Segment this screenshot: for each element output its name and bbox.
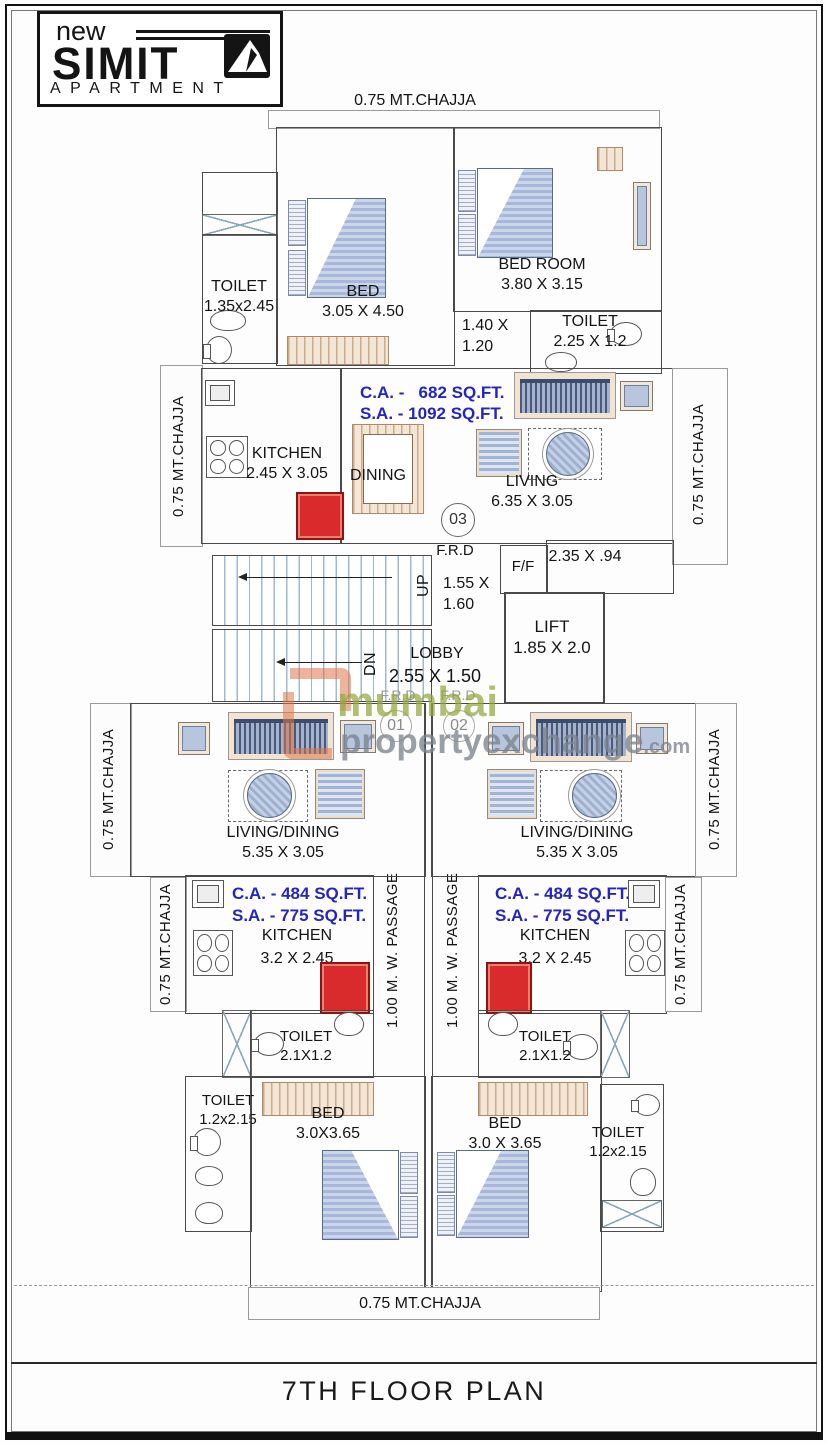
room-dim: 3.05 X 4.50 xyxy=(303,302,423,322)
room-name: BED xyxy=(465,1114,545,1134)
kitchen-platform-icon xyxy=(320,962,370,1014)
pillow-icon xyxy=(400,1196,418,1238)
bed-icon xyxy=(322,1150,418,1240)
mattress-icon xyxy=(477,168,553,258)
stair-flight-up xyxy=(212,555,432,626)
room-dim: 3.0X3.65 xyxy=(288,1124,368,1144)
wc-icon xyxy=(634,1094,660,1116)
logo-rule-1 xyxy=(136,30,270,33)
glass-icon xyxy=(640,727,664,750)
round-table-icon xyxy=(546,432,590,476)
u1-living-label: LIVING/DINING 5.35 X 3.05 xyxy=(203,823,363,863)
bottom-chajja-label: 0.75 MT.CHAJJA xyxy=(320,1294,520,1314)
glass-icon xyxy=(344,724,372,749)
stair-dim-label: 1.55 X 1.60 xyxy=(443,574,489,616)
room-name: BED xyxy=(288,1104,368,1124)
sink-bowl-icon xyxy=(197,885,219,903)
sink-bowl-icon xyxy=(210,385,230,401)
kitchen-sink-icon xyxy=(628,880,660,908)
wardrobe-icon xyxy=(478,1082,588,1116)
room-dim: 2.25 X 1.2 xyxy=(530,332,650,352)
wc-icon xyxy=(193,1128,221,1156)
kitchen-platform-icon xyxy=(486,962,532,1014)
u1-chajja-kitchen-label: 0.75 MT.CHAJJA xyxy=(157,880,177,1008)
washbasin-icon xyxy=(195,1166,223,1186)
u1-bed-label: BED 3.0X3.65 xyxy=(288,1104,368,1144)
u3-bed-label: BED 3.05 X 4.50 xyxy=(303,282,423,322)
stove-icon xyxy=(193,930,233,976)
logo-box: new SIMIT APARTMENT xyxy=(37,11,283,107)
window-curtain-icon xyxy=(530,712,632,762)
bed-icon xyxy=(437,1150,529,1238)
wardrobe-icon xyxy=(287,336,389,365)
u3-chajja-left-label: 0.75 MT.CHAJJA xyxy=(170,390,190,522)
top-chajja-label: 0.75 MT.CHAJJA xyxy=(290,91,540,111)
room-name: LIFT xyxy=(492,616,612,637)
u3-entry-dim-label: 1.40 X 1.20 xyxy=(462,316,508,358)
plan-title: 7TH FLOOR PLAN xyxy=(0,1376,828,1407)
washbasin-icon xyxy=(630,1168,656,1196)
bed-fold-icon xyxy=(457,1151,501,1237)
terrace-dim-label: 2.35 X .94 xyxy=(525,547,645,567)
room-dim: 3.80 X 3.15 xyxy=(482,275,602,295)
frd-right-label: F.R.D xyxy=(428,687,488,705)
u2-chajja-kitchen-label: 0.75 MT.CHAJJA xyxy=(672,880,692,1008)
curtain-panel-icon xyxy=(536,719,626,756)
dim-line: 1.60 xyxy=(443,595,489,616)
u2-bed-label: BED 3.0 X 3.65 xyxy=(465,1114,545,1154)
glass-icon xyxy=(624,385,649,407)
u2-toilet-big-label: TOILET 1.2x2.15 xyxy=(578,1124,658,1162)
tv-unit-icon xyxy=(477,430,521,476)
u3-carpet-area-label: C.A. - 682 SQ.FT. xyxy=(360,383,505,403)
room-name: KITCHEN xyxy=(227,444,347,464)
room-name: TOILET xyxy=(505,1028,585,1047)
room-dim: 5.35 X 3.05 xyxy=(203,843,363,863)
bed-icon xyxy=(458,168,553,258)
room-dim: 2.1X1.2 xyxy=(266,1047,346,1066)
u3-saleable-area-label: S.A. - 1092 SQ.FT. xyxy=(360,404,504,424)
u1-passage-label: 1.00 M. W. PASSAGE xyxy=(384,878,404,1028)
curtain-panel-icon xyxy=(234,719,328,754)
room-name: LIVING/DINING xyxy=(203,823,363,843)
lobby-dim-label: 2.55 X 1.50 xyxy=(375,665,495,688)
flat-number-03: 03 xyxy=(441,503,475,537)
u1-chajja-living-label: 0.75 MT.CHAJJA xyxy=(100,714,120,864)
room-name: TOILET xyxy=(196,277,282,297)
u1-saleable-area-label: S.A. - 775 SQ.FT. xyxy=(232,906,366,926)
room-dim: 6.35 X 3.05 xyxy=(472,492,592,512)
bottom-dashed-line xyxy=(14,1285,814,1286)
pillow-icon xyxy=(437,1152,455,1193)
u2-carpet-area-label: C.A. - 484 SQ.FT. xyxy=(495,884,630,904)
kitchen-sink-icon xyxy=(205,380,235,406)
room-name: BED xyxy=(303,282,423,302)
u3-living-label: LIVING 6.35 X 3.05 xyxy=(472,472,592,512)
u3-dining-label: DINING xyxy=(328,466,428,486)
arrowhead-icon xyxy=(238,573,247,581)
ac-unit-icon xyxy=(597,147,623,171)
u3-toilet-left-label: TOILET 1.35x2.45 xyxy=(196,277,282,317)
floor-plan-page: new SIMIT APARTMENT 0.75 MT.CHAJJA TOILE… xyxy=(0,0,828,1444)
room-name: TOILET xyxy=(578,1124,658,1143)
duct-icon xyxy=(602,1200,662,1228)
glass-icon xyxy=(637,186,647,246)
pillow-icon xyxy=(400,1152,418,1194)
pillow-icon xyxy=(437,1195,455,1236)
stair-arrow-up xyxy=(246,577,392,578)
round-table-icon xyxy=(572,773,617,818)
pillow-icon xyxy=(458,170,476,212)
tv-unit-icon xyxy=(488,770,536,818)
room-dim: 1.85 X 2.0 xyxy=(492,637,612,658)
round-table-icon xyxy=(247,773,292,818)
u2-toilet-small-label: TOILET 2.1X1.2 xyxy=(505,1028,585,1066)
window-icon xyxy=(340,720,376,753)
sink-bowl-icon xyxy=(633,885,655,903)
bed-fold-icon xyxy=(352,1151,399,1239)
dim-line: 1.55 X xyxy=(443,574,489,595)
window-icon xyxy=(178,722,210,755)
u3-duct-grill-icon xyxy=(202,214,278,236)
tv-unit-icon xyxy=(316,770,364,818)
pillow-icon xyxy=(288,200,306,246)
glass-icon xyxy=(182,726,206,751)
room-name: KITCHEN xyxy=(237,926,357,946)
duct-icon xyxy=(222,1010,252,1078)
room-name: TOILET xyxy=(530,312,650,332)
kitchen-sink-icon xyxy=(192,880,224,908)
window-curtain-icon xyxy=(228,712,334,760)
window-icon xyxy=(620,381,653,411)
u1-carpet-area-label: C.A. - 484 SQ.FT. xyxy=(232,884,367,904)
logo-subtitle: APARTMENT xyxy=(50,80,274,98)
window-icon xyxy=(488,722,524,755)
lift-label: LIFT 1.85 X 2.0 xyxy=(492,616,612,659)
kitchen-platform-icon xyxy=(296,492,344,540)
frd-left-label: F.R.D xyxy=(368,687,428,705)
u1-toilet-small-label: TOILET 2.1X1.2 xyxy=(266,1028,346,1066)
room-dim: 1.2x2.15 xyxy=(578,1143,658,1162)
duct-icon xyxy=(600,1010,630,1078)
u3-chajja-right-label: 0.75 MT.CHAJJA xyxy=(690,388,710,540)
mattress-icon xyxy=(322,1150,399,1240)
room-name: LIVING xyxy=(472,472,592,492)
window-icon xyxy=(636,723,668,754)
wc-icon xyxy=(206,336,232,364)
u2-living-label: LIVING/DINING 5.35 X 3.05 xyxy=(497,823,657,863)
u2-chajja-living-label: 0.75 MT.CHAJJA xyxy=(706,714,726,864)
sofa-cushion-icon xyxy=(520,379,610,413)
u2-saleable-area-label: S.A. - 775 SQ.FT. xyxy=(495,906,629,926)
title-separator-line xyxy=(11,1362,817,1364)
up-label: UP xyxy=(415,564,435,606)
u3-toilet-right-label: TOILET 2.25 X 1.2 xyxy=(530,312,650,352)
room-name: LIVING/DINING xyxy=(497,823,657,843)
u3-bedroom-label: BED ROOM 3.80 X 3.15 xyxy=(482,255,602,295)
window-icon xyxy=(633,182,651,250)
mountain-icon xyxy=(224,34,270,78)
bed-fold-icon xyxy=(478,169,524,257)
stair-arrow-down xyxy=(284,662,362,663)
glass-icon xyxy=(492,726,520,751)
arrowhead-icon xyxy=(276,658,285,666)
room-name: BED ROOM xyxy=(482,255,602,275)
room-dim: 5.35 X 3.05 xyxy=(497,843,657,863)
mattress-icon xyxy=(456,1150,529,1238)
dim-line: 1.20 xyxy=(462,337,508,358)
u2-passage-label: 1.00 M. W. PASSAGE xyxy=(444,878,464,1028)
room-name: TOILET xyxy=(266,1028,346,1047)
dim-line: 1.40 X xyxy=(462,316,508,337)
double-bed-sofa-icon xyxy=(514,372,616,419)
washbasin-icon xyxy=(195,1202,223,1224)
room-dim: 2.1X1.2 xyxy=(505,1047,585,1066)
pillow-icon xyxy=(458,214,476,256)
room-dim: 1.35x2.45 xyxy=(196,297,282,317)
stove-icon xyxy=(625,930,665,976)
lobby-label: LOBBY xyxy=(397,644,477,664)
room-name: KITCHEN xyxy=(495,926,615,946)
